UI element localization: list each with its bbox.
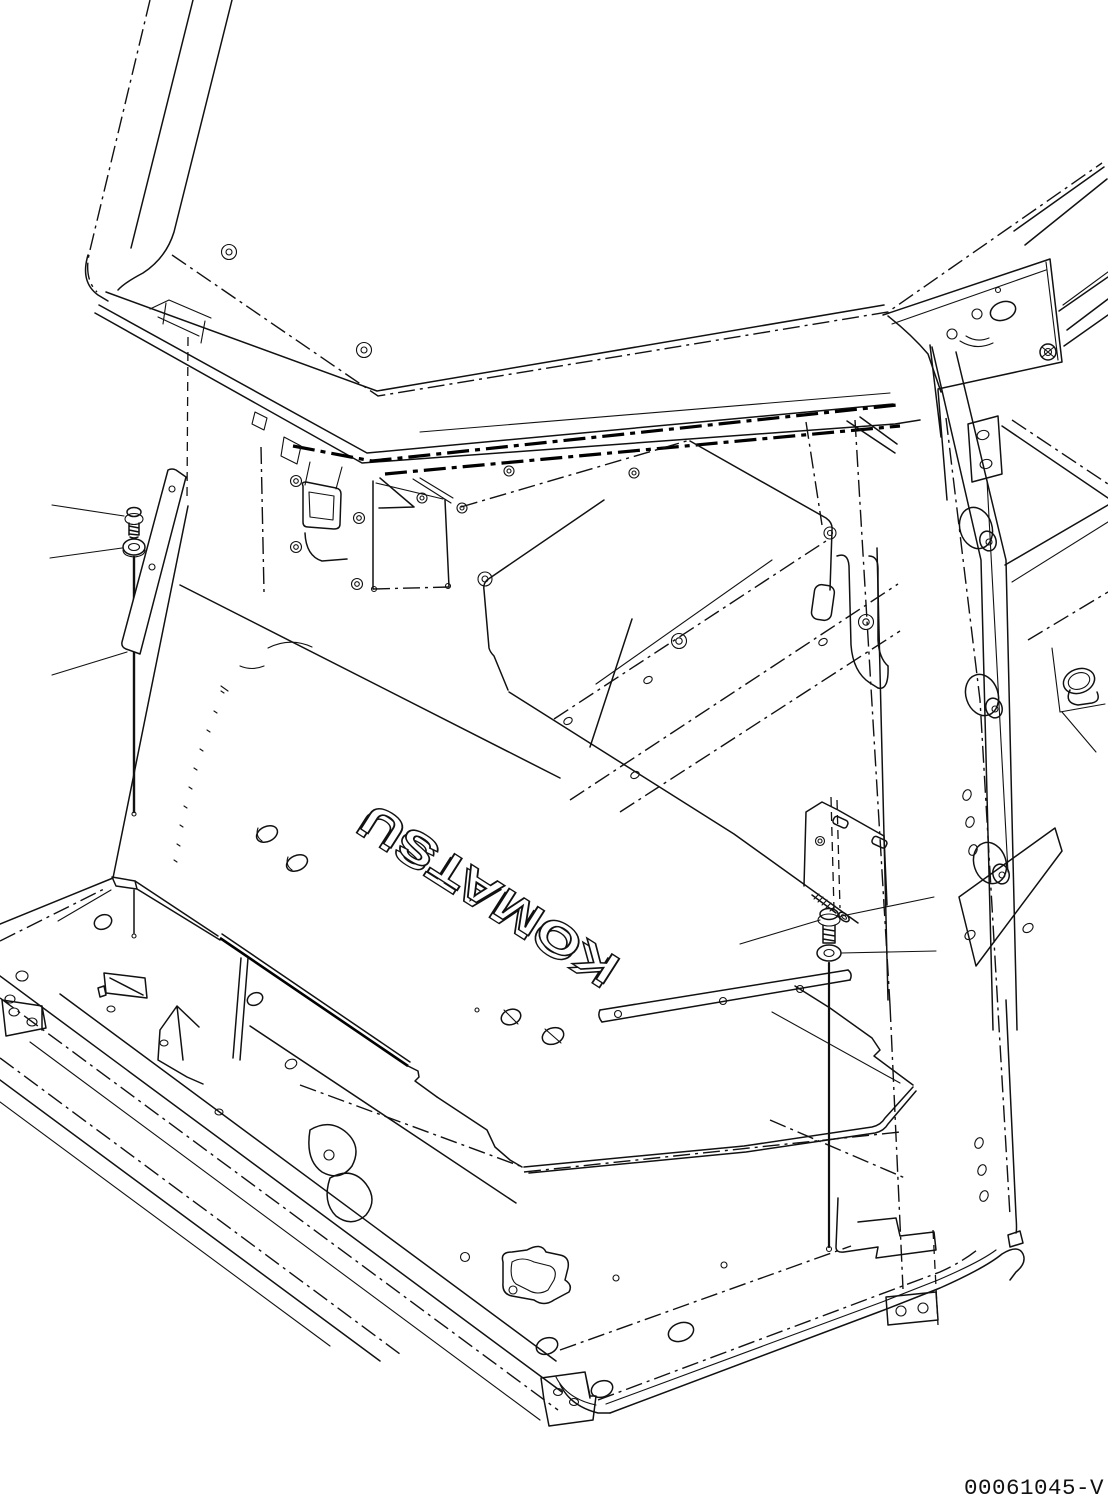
svg-text:00061045-V: 00061045-V bbox=[964, 1475, 1104, 1498]
